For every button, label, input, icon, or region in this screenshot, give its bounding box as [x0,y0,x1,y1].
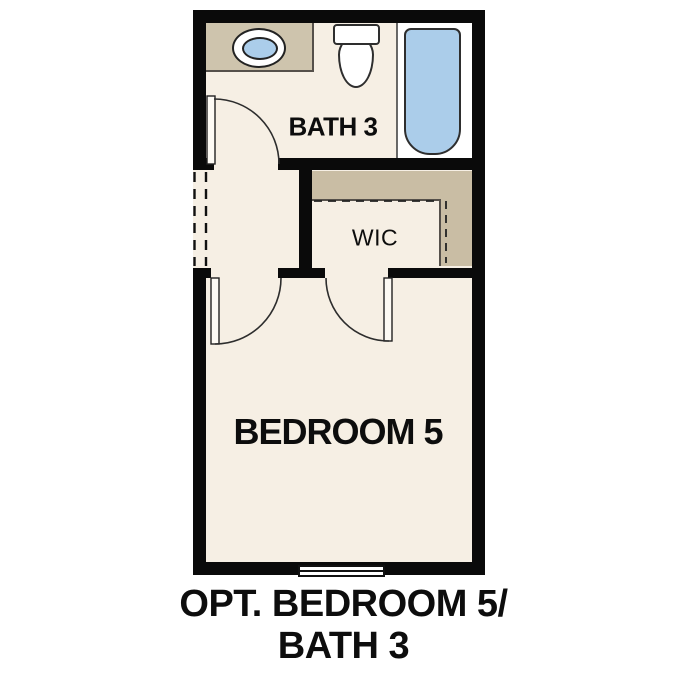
room-label-bath3: BATH 3 [289,112,378,143]
wall-right [472,10,485,575]
wall-hall-wic-divider [299,158,312,278]
wall-bedroom-north-left [193,268,211,278]
window [298,565,385,577]
floor-plan: BATH 3 WIC BEDROOM 5 [193,10,485,575]
bathtub [404,28,461,155]
plan-caption-line2: BATH 3 [0,626,687,668]
toilet [333,24,380,45]
plan-caption-line1: OPT. BEDROOM 5/ [0,584,687,626]
sink-basin [242,37,278,60]
room-label-wic: WIC [352,225,398,252]
wall-bath-south-left [193,158,214,170]
room-label-bedroom5: BEDROOM 5 [233,411,442,453]
wall-left-lower [193,268,206,575]
wall-left-upper [193,10,206,170]
plan-caption: OPT. BEDROOM 5/ BATH 3 [0,584,687,668]
wall-top [193,10,485,23]
wall-bedroom-north-right [388,268,472,278]
